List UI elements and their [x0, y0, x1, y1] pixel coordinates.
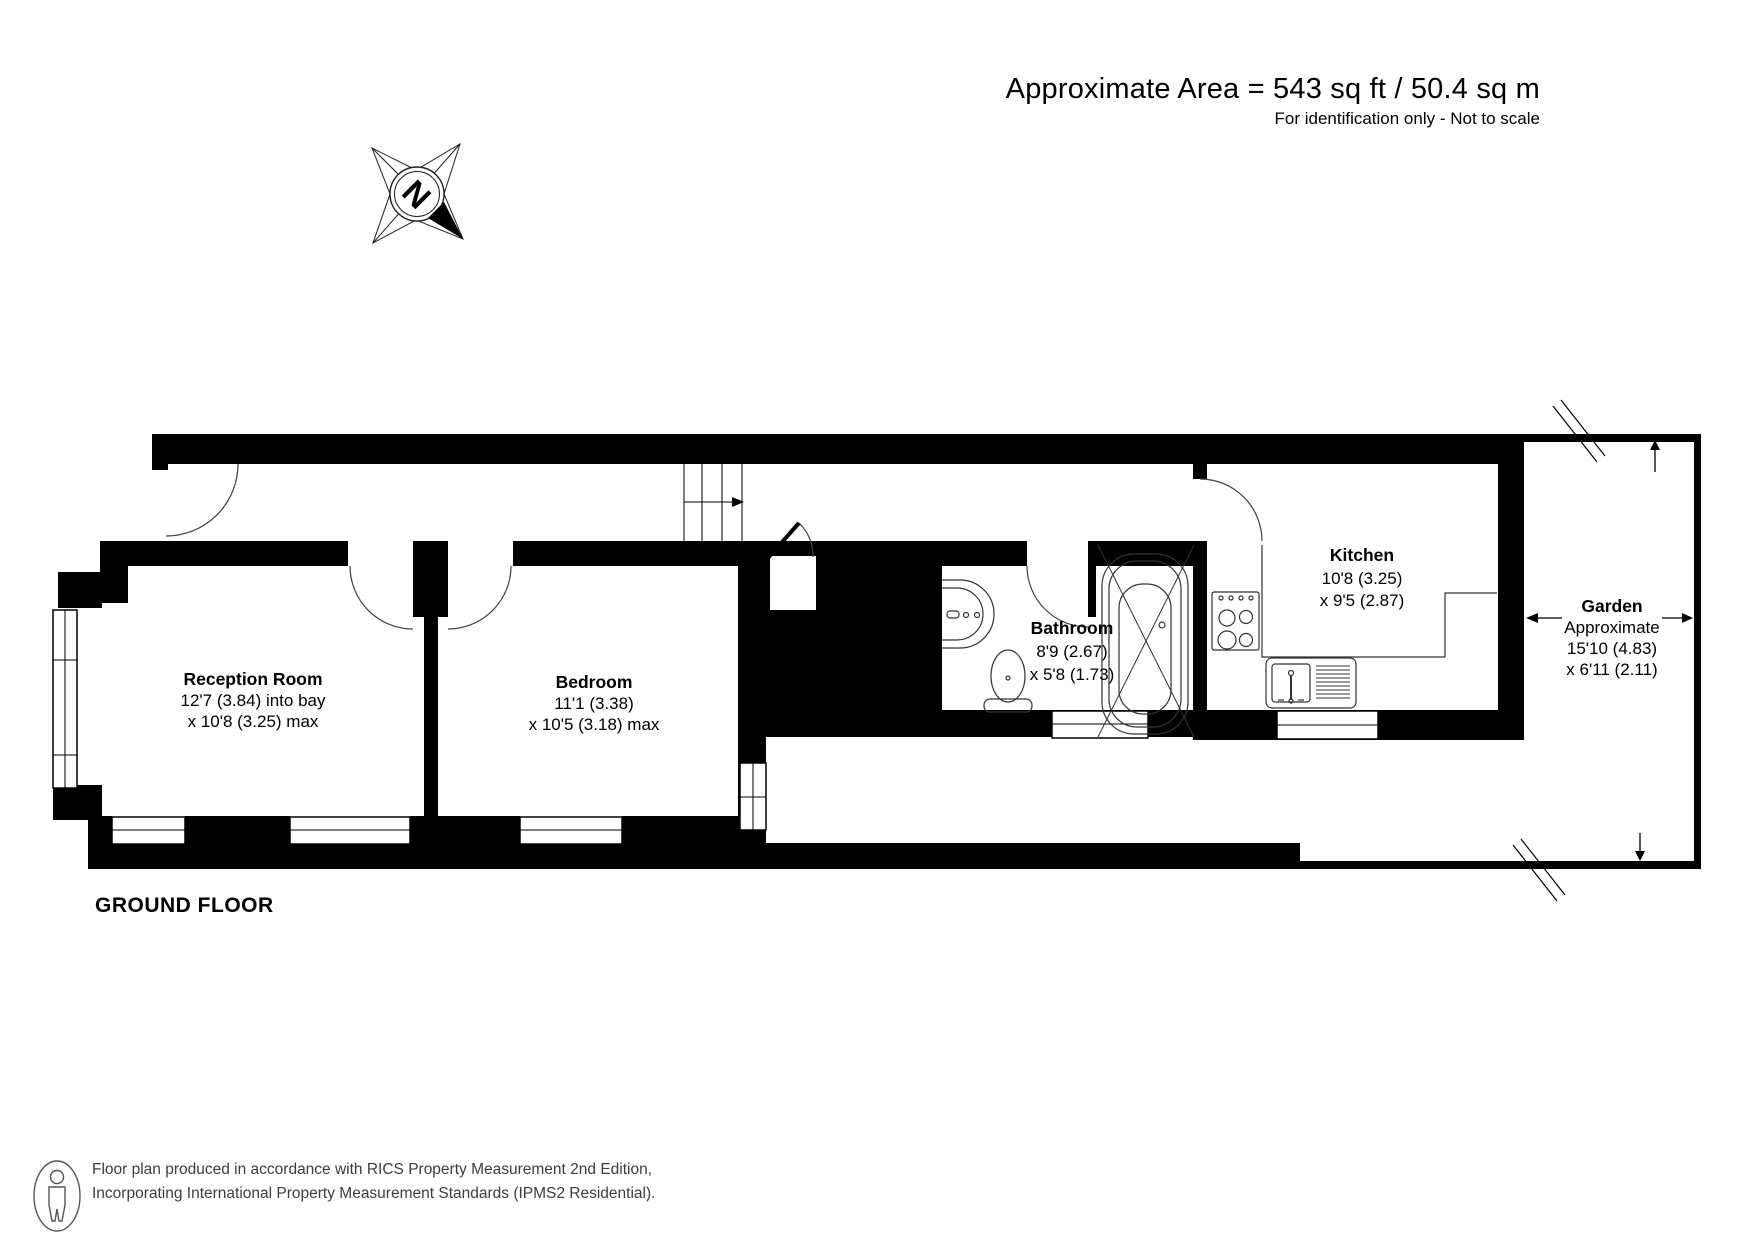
room-dim: x 5'8 (1.73)	[1030, 665, 1115, 684]
wall-segment	[424, 617, 438, 843]
room-name: Kitchen	[1330, 545, 1394, 565]
window	[1277, 711, 1378, 739]
footer-line-1: Floor plan produced in accordance with R…	[92, 1158, 655, 1182]
room-label-kitchen: Kitchen 10'8 (3.25) x 9'5 (2.87)	[1320, 545, 1405, 610]
room-name: Bedroom	[556, 672, 633, 692]
room-name: Bathroom	[1031, 618, 1114, 638]
wall-segment	[100, 541, 348, 566]
room-label-garden: Garden Approximate 15'10 (4.83) x 6'11 (…	[1564, 596, 1659, 679]
wall-segment	[100, 541, 128, 603]
wall-segment	[1193, 464, 1207, 479]
kitchen-sink-icon	[1266, 658, 1356, 708]
wall-segment	[413, 541, 448, 617]
sink-icon	[942, 580, 994, 648]
garden-wall	[1300, 861, 1701, 869]
wall-segment	[1088, 541, 1096, 617]
floor-plan-svg: N	[0, 0, 1755, 1241]
bathtub-icon	[1098, 545, 1194, 737]
wall-segment	[88, 816, 112, 846]
room-dim: x 9'5 (2.87)	[1320, 591, 1405, 610]
door-recess	[770, 556, 816, 610]
room-dim: 12'7 (3.84) into bay	[180, 691, 326, 710]
room-name: Garden	[1581, 596, 1642, 616]
bay-window	[53, 610, 77, 788]
wall-segment	[88, 843, 1300, 869]
stairs-icon	[684, 464, 744, 541]
room-dim: 15'10 (4.83)	[1567, 639, 1657, 658]
window	[740, 763, 766, 830]
window	[290, 817, 410, 844]
footer-line-2: Incorporating International Property Mea…	[92, 1182, 655, 1206]
compass-rose-icon: N	[372, 144, 463, 243]
room-dim: 8'9 (2.67)	[1036, 642, 1107, 661]
room-label-reception: Reception Room 12'7 (3.84) into bay x 10…	[180, 669, 326, 731]
walls	[53, 434, 1701, 869]
bathroom-fixtures	[942, 545, 1194, 737]
window	[112, 817, 185, 844]
room-dim: 10'8 (3.25)	[1322, 569, 1403, 588]
wall-segment	[185, 816, 290, 843]
reception-door-arc	[350, 566, 413, 629]
toilet-icon	[984, 650, 1032, 712]
person-icon	[34, 1161, 80, 1231]
garden-wall	[1694, 434, 1701, 869]
room-note: Approximate	[1564, 618, 1659, 637]
wall-segment	[152, 434, 1524, 464]
wall-segment	[513, 541, 766, 566]
room-dim: x 10'5 (3.18) max	[529, 715, 660, 734]
floor-label: GROUND FLOOR	[95, 894, 274, 917]
wall-segment	[58, 572, 102, 608]
wall-segment	[152, 464, 168, 470]
hob-icon	[1212, 592, 1259, 650]
floorplan-page: Approximate Area = 543 sq ft / 50.4 sq m…	[0, 0, 1755, 1241]
garden-wall	[1524, 434, 1701, 442]
wall-segment	[622, 816, 740, 843]
kitchen-door-arc	[1200, 479, 1262, 541]
room-dim: x 6'11 (2.11)	[1566, 660, 1657, 679]
wall-segment	[1193, 541, 1207, 740]
bedroom-door-arc	[448, 566, 511, 629]
room-label-bathroom: Bathroom 8'9 (2.67) x 5'8 (1.73)	[1030, 618, 1115, 684]
room-dim: 11'1 (3.38)	[554, 694, 633, 713]
room-dim: x 10'8 (3.25) max	[188, 712, 319, 731]
footer-disclaimer: Floor plan produced in accordance with R…	[92, 1158, 655, 1206]
room-label-bedroom: Bedroom 11'1 (3.38) x 10'5 (3.18) max	[529, 672, 660, 734]
room-name: Reception Room	[183, 669, 322, 689]
front-door-arc	[166, 464, 238, 536]
wall-segment	[1498, 434, 1524, 740]
window	[520, 817, 622, 844]
wall-segment	[53, 785, 102, 820]
